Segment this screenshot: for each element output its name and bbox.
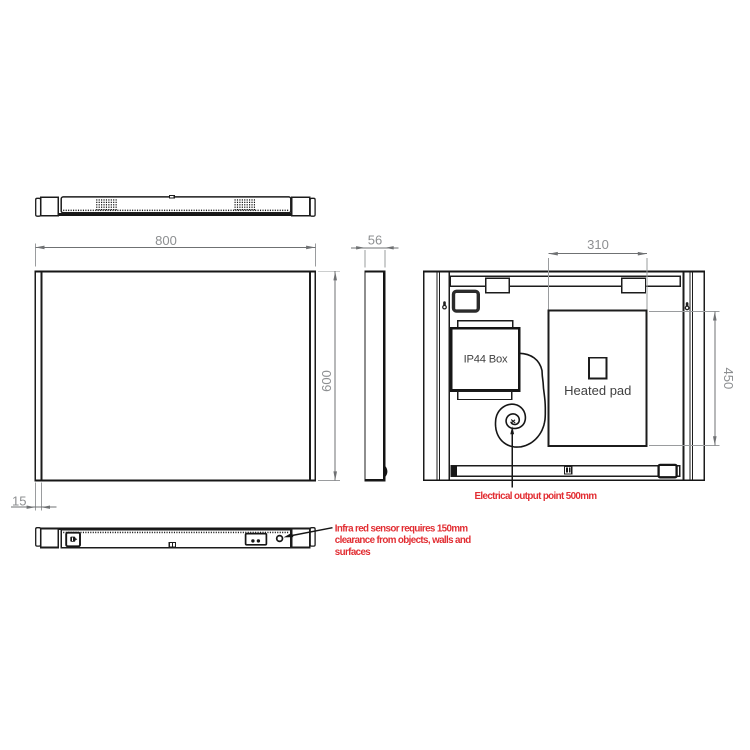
svg-text:IP44 Box: IP44 Box (464, 354, 508, 366)
svg-text:surfaces: surfaces (335, 547, 372, 558)
svg-text:600: 600 (319, 370, 334, 392)
svg-text:56: 56 (368, 233, 382, 248)
svg-text:Infra red sensor requires 150m: Infra red sensor requires 150mm (335, 524, 469, 535)
svg-text:15: 15 (12, 493, 26, 508)
svg-text:800: 800 (155, 233, 177, 248)
svg-text:clearance from objects, walls: clearance from objects, walls and (335, 535, 471, 546)
svg-text:310: 310 (587, 237, 609, 252)
svg-text:450: 450 (721, 368, 736, 390)
svg-text:Electrical output point 500mm: Electrical output point 500mm (475, 491, 598, 502)
svg-text:Heated pad: Heated pad (564, 383, 631, 398)
